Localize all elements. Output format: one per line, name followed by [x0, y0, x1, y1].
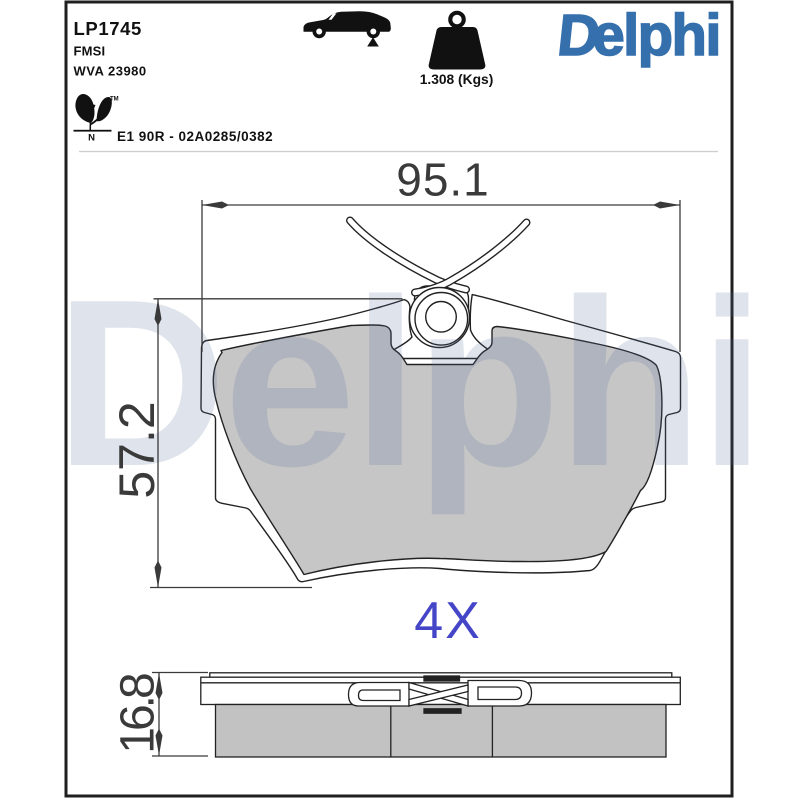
- svg-text:LP1745: LP1745: [74, 18, 142, 39]
- svg-text:E1 90R - 02A0285/0382: E1 90R - 02A0285/0382: [117, 129, 273, 144]
- svg-text:1.308 (Kgs): 1.308 (Kgs): [420, 72, 494, 87]
- svg-text:WVA 23980: WVA 23980: [74, 64, 147, 79]
- svg-text:4X: 4X: [414, 592, 482, 650]
- svg-text:57.2: 57.2: [109, 401, 165, 498]
- svg-text:TM: TM: [110, 97, 119, 103]
- svg-text:95.1: 95.1: [396, 154, 490, 206]
- svg-text:16.8: 16.8: [112, 674, 165, 754]
- svg-text:elphi: elphi: [593, 3, 720, 68]
- svg-text:FMSI: FMSI: [74, 44, 106, 59]
- svg-text:N: N: [88, 133, 95, 144]
